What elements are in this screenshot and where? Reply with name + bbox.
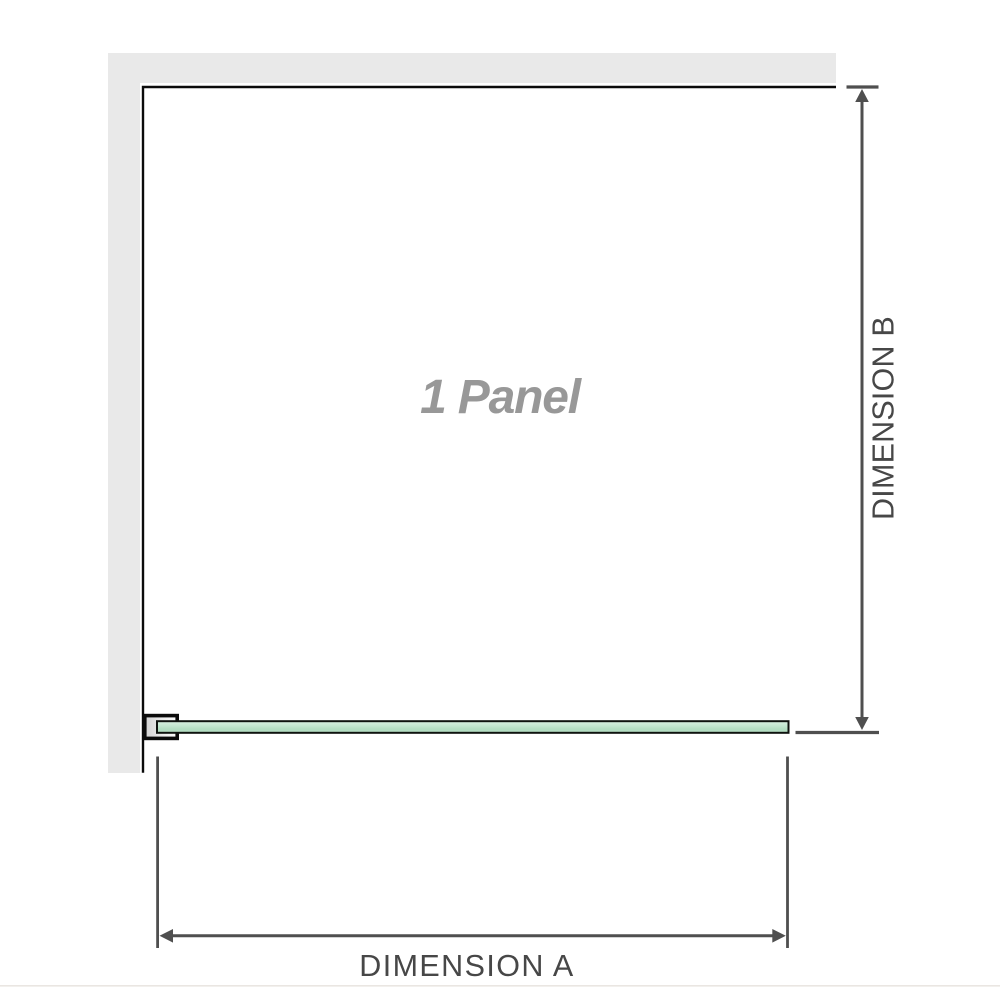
svg-text:1 Panel: 1 Panel <box>420 371 583 424</box>
svg-text:DIMENSION B: DIMENSION B <box>867 316 901 520</box>
svg-text:DIMENSION A: DIMENSION A <box>359 949 574 983</box>
